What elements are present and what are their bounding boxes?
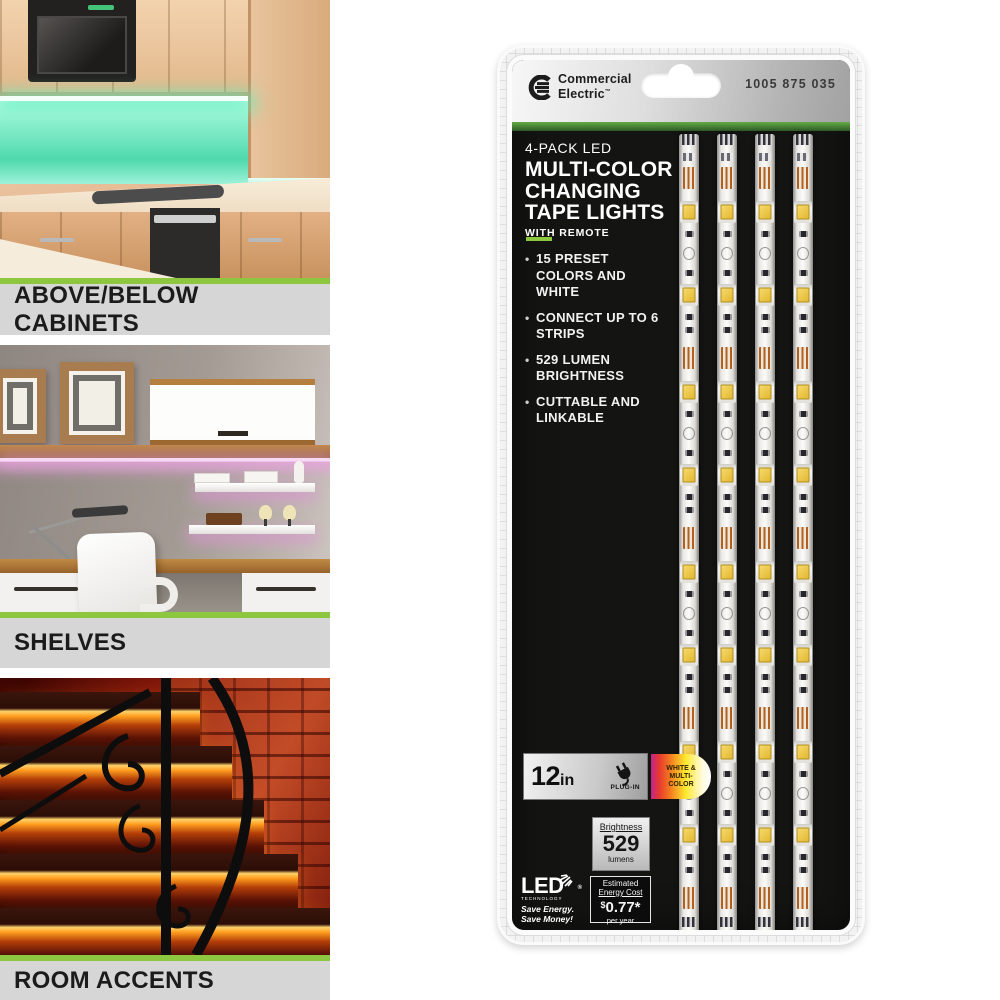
- strip-segment: [794, 741, 812, 763]
- strip-segment: [756, 561, 774, 583]
- title-line2: MULTI-COLOR: [525, 159, 673, 181]
- brightness-value: 529: [593, 832, 649, 855]
- strip-segment: [721, 427, 733, 440]
- power-type: PLUG-IN: [610, 762, 640, 791]
- led-tape-strip: [793, 134, 813, 930]
- commercial-electric-mark-icon: [524, 75, 551, 100]
- strip-segment: [797, 247, 809, 260]
- strip-segment: [721, 607, 733, 620]
- kitchen-microwave: [28, 0, 136, 82]
- strip-segment: [759, 427, 771, 440]
- strip-segment: [759, 247, 771, 260]
- strip-segment: [797, 607, 809, 620]
- package-card: Commercial Electric™ 1005 875 035 4-PACK…: [512, 60, 850, 930]
- drawer-slot: [14, 587, 78, 591]
- strip-segment: [759, 347, 771, 369]
- brand-line2: Electric™: [558, 86, 632, 101]
- strip-segment: [797, 167, 809, 189]
- strip-segment: [721, 247, 733, 260]
- strip-segment: [718, 284, 736, 306]
- energy-cost-box: Estimated Energy Cost $0.77* per year: [590, 876, 651, 923]
- strip-segment: [759, 153, 771, 161]
- strip-segment: [718, 381, 736, 403]
- kitchen-oven: [150, 208, 220, 278]
- strip-segment: [796, 917, 810, 927]
- strip-segment: [759, 167, 771, 189]
- led-technology-logo: LED ® TECHNOLOGY Save Energy. Save Money…: [521, 876, 583, 924]
- caption-shelves: SHELVES: [0, 612, 330, 668]
- brand-logo: Commercial Electric™: [524, 73, 632, 101]
- strip-segment: [758, 134, 772, 145]
- feature-item: CUTTABLE AND LINKABLE: [525, 394, 665, 427]
- floating-shelf: [195, 483, 315, 492]
- strip-segment: [718, 741, 736, 763]
- desk-top: [0, 559, 330, 573]
- strip-segment: [680, 561, 698, 583]
- books: [194, 473, 230, 483]
- strip-segment: [794, 561, 812, 583]
- strip-segment: [721, 787, 733, 800]
- strip-segment: [756, 464, 774, 486]
- strip-segment: [721, 887, 733, 909]
- strip-segment: [721, 153, 733, 161]
- cabinet-handle-slot: [218, 431, 248, 436]
- strip-segment: [794, 644, 812, 666]
- strip-segment: [680, 284, 698, 306]
- wrought-iron-railing: [0, 678, 330, 955]
- led-word: LED ®: [521, 876, 564, 896]
- under-cabinet-light-strip: [0, 96, 248, 101]
- energy-heading2: Energy Cost: [591, 888, 650, 897]
- strip-segment: [720, 917, 734, 927]
- oven-handle: [154, 215, 216, 223]
- green-led-backsplash-glow: [0, 96, 248, 184]
- floating-shelf: [189, 525, 315, 534]
- strip-segment: [718, 824, 736, 846]
- strip-segment: [756, 741, 774, 763]
- energy-heading1: Estimated: [591, 879, 650, 888]
- drawer-unit-right: [242, 573, 330, 612]
- photo-office-shelf-lighting: [0, 345, 330, 612]
- strip-segment: [759, 787, 771, 800]
- strip-segment: [718, 464, 736, 486]
- strip-segment: [794, 381, 812, 403]
- strip-segment: [797, 707, 809, 729]
- feature-list: 15 PRESET COLORS AND WHITE CONNECT UP TO…: [525, 251, 665, 436]
- green-accent-stripe: [512, 122, 850, 131]
- strip-segment: [683, 527, 695, 549]
- caption-above-below-cabinets: ABOVE/BELOW CABINETS: [0, 278, 330, 335]
- strip-segment: [794, 284, 812, 306]
- strip-segment: [797, 347, 809, 369]
- strip-segment: [794, 824, 812, 846]
- strip-segment: [794, 464, 812, 486]
- strip-segment: [680, 824, 698, 846]
- strip-segment: [720, 134, 734, 145]
- microwave-display: [88, 5, 114, 10]
- strip-segment: [759, 607, 771, 620]
- title-line4: TAPE LIGHTS: [525, 202, 673, 224]
- hang-hole: [641, 73, 721, 98]
- spec-bar: 12in PLUG-IN: [524, 754, 647, 799]
- feature-item: CONNECT UP TO 6 STRIPS: [525, 310, 665, 343]
- caption-room-accents: ROOM ACCENTS: [0, 955, 330, 1000]
- drawer-handle: [248, 238, 282, 242]
- picture-frame: [60, 362, 134, 444]
- office-chair-armrest: [140, 577, 178, 612]
- led-rays-icon: [558, 868, 578, 888]
- color-capability-badge: WHITE & MULTI-COLOR: [651, 754, 711, 799]
- product-listing-image: ABOVE/BELOW CABINETS: [0, 0, 1000, 1000]
- strip-segment: [680, 381, 698, 403]
- strip-segment: [680, 644, 698, 666]
- strip-segment: [721, 527, 733, 549]
- color-badge-text: WHITE & MULTI-COLOR: [663, 765, 699, 789]
- vase: [294, 461, 304, 483]
- frame-art: [13, 388, 27, 424]
- product-title: 4-PACK LED MULTI-COLOR CHANGING TAPE LIG…: [525, 140, 673, 239]
- wooden-box: [206, 513, 242, 525]
- feature-item: 529 LUMEN BRIGHTNESS: [525, 352, 665, 385]
- strip-segment: [756, 201, 774, 223]
- strip-segment: [718, 644, 736, 666]
- picture-frame: [0, 369, 46, 443]
- strip-segment: [683, 167, 695, 189]
- frame-art: [79, 381, 115, 425]
- strip-segment: [797, 153, 809, 161]
- drawer-slot: [256, 587, 316, 591]
- caption-text: ROOM ACCENTS: [14, 967, 214, 995]
- candle-holder: [283, 505, 296, 520]
- strip-segment: [683, 347, 695, 369]
- candle-holder: [259, 505, 272, 520]
- strip-segment: [721, 167, 733, 189]
- strip-segment: [683, 607, 695, 620]
- strip-segment: [797, 887, 809, 909]
- photo-kitchen-under-cabinet-lighting: [0, 0, 330, 278]
- caption-text: ABOVE/BELOW CABINETS: [14, 282, 330, 338]
- registered-mark: ®: [578, 878, 582, 898]
- strip-segment: [794, 201, 812, 223]
- kitchen-corner-cabinet: [248, 0, 330, 178]
- strip-segment: [721, 707, 733, 729]
- strip-segment: [680, 464, 698, 486]
- wall-cabinet: [150, 379, 315, 445]
- drawer-handle: [40, 238, 74, 242]
- strip-segment: [682, 134, 696, 145]
- strip-segment: [718, 201, 736, 223]
- strip-segment: [683, 247, 695, 260]
- title-line3: CHANGING: [525, 181, 673, 203]
- strip-segment: [796, 134, 810, 145]
- strip-segment: [683, 707, 695, 729]
- brand-line1: Commercial: [558, 73, 632, 86]
- strip-segment: [756, 824, 774, 846]
- product-package: Commercial Electric™ 1005 875 035 4-PACK…: [497, 45, 865, 945]
- green-dash: [526, 237, 552, 241]
- led-tape-strip: [679, 134, 699, 930]
- strip-segment: [797, 787, 809, 800]
- sku-number: 1005 875 035: [745, 77, 836, 91]
- strip-segment: [759, 527, 771, 549]
- strip-segment: [759, 707, 771, 729]
- energy-unit: per year: [591, 916, 650, 925]
- strip-segment: [756, 381, 774, 403]
- strip-segment: [756, 284, 774, 306]
- led-tape-strip: [717, 134, 737, 930]
- strip-segment: [797, 427, 809, 440]
- strip-length: 12in: [531, 761, 574, 792]
- brand-name: Commercial Electric™: [558, 73, 632, 101]
- books: [244, 471, 278, 483]
- strip-segment: [683, 153, 695, 161]
- title-line1: 4-PACK LED: [525, 140, 673, 156]
- microwave-door: [37, 16, 127, 74]
- led-tagline: Save Energy. Save Money!: [521, 905, 583, 924]
- strip-segment: [683, 887, 695, 909]
- wood-ledge-shelf: [0, 445, 330, 458]
- strip-segment: [721, 347, 733, 369]
- strip-segment: [682, 917, 696, 927]
- photo-staircase-accent-lighting: [0, 678, 330, 955]
- strip-segment: [683, 427, 695, 440]
- strip-segment: [718, 561, 736, 583]
- brightness-unit: lumens: [593, 855, 649, 864]
- brightness-box: Brightness 529 lumens: [592, 817, 650, 871]
- caption-text: SHELVES: [14, 629, 126, 657]
- feature-item: 15 PRESET COLORS AND WHITE: [525, 251, 665, 301]
- strip-segment: [797, 527, 809, 549]
- energy-value: $0.77*: [591, 897, 650, 916]
- strip-segment: [756, 644, 774, 666]
- strip-segment: [758, 917, 772, 927]
- strip-segment: [759, 887, 771, 909]
- led-tape-strip: [755, 134, 775, 930]
- purple-glow: [0, 461, 330, 475]
- strip-segment: [680, 201, 698, 223]
